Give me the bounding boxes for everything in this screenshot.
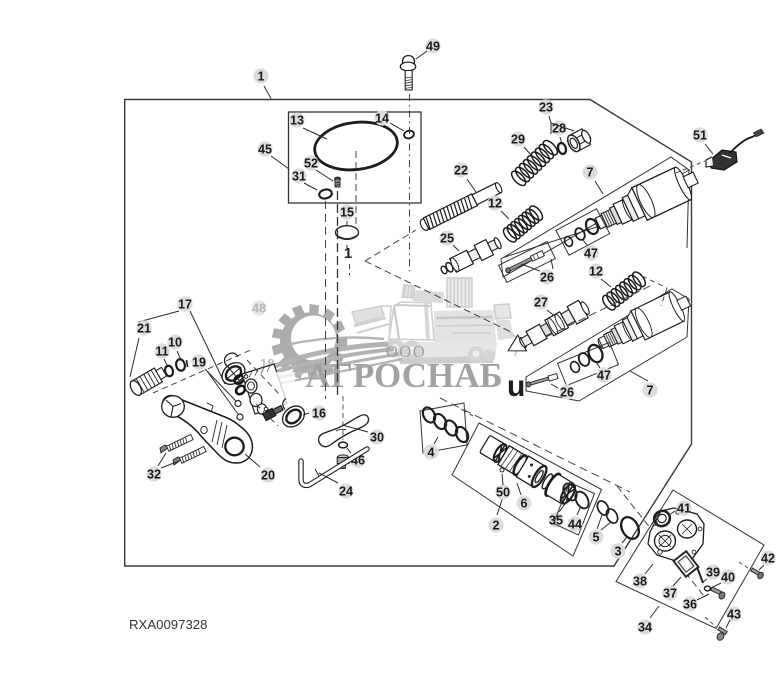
svg-text:7: 7 <box>586 166 593 180</box>
svg-text:10: 10 <box>168 336 182 350</box>
svg-text:41: 41 <box>677 502 691 516</box>
svg-text:26: 26 <box>540 271 554 285</box>
svg-text:32: 32 <box>147 468 161 482</box>
svg-text:52: 52 <box>304 157 318 171</box>
svg-text:42: 42 <box>761 552 775 566</box>
svg-text:4: 4 <box>427 446 434 460</box>
svg-text:7: 7 <box>646 384 653 398</box>
svg-text:31: 31 <box>292 170 306 184</box>
svg-text:5: 5 <box>592 531 599 545</box>
svg-text:38: 38 <box>633 575 647 589</box>
svg-text:44: 44 <box>568 518 582 532</box>
svg-text:47: 47 <box>597 369 611 383</box>
svg-text:16: 16 <box>312 407 326 421</box>
svg-text:35: 35 <box>549 514 563 528</box>
svg-text:49: 49 <box>426 40 440 54</box>
svg-text:1: 1 <box>344 245 352 262</box>
svg-text:АГРОСНАБ: АГРОСНАБ <box>305 356 502 395</box>
svg-text:22: 22 <box>454 164 468 178</box>
svg-text:51: 51 <box>693 129 707 143</box>
svg-text:12: 12 <box>589 265 603 279</box>
svg-text:13: 13 <box>290 114 304 128</box>
svg-text:43: 43 <box>727 608 741 622</box>
svg-text:21: 21 <box>137 322 151 336</box>
svg-text:12: 12 <box>488 197 502 211</box>
svg-text:11: 11 <box>155 345 168 359</box>
svg-text:u: u <box>507 370 525 403</box>
svg-text:37: 37 <box>663 587 677 601</box>
svg-text:30: 30 <box>370 431 384 445</box>
svg-text:2: 2 <box>492 519 499 533</box>
svg-text:17: 17 <box>178 298 192 312</box>
svg-text:20: 20 <box>261 469 275 483</box>
svg-text:23: 23 <box>539 101 553 115</box>
svg-text:50: 50 <box>496 486 510 500</box>
svg-text:25: 25 <box>440 232 454 246</box>
svg-text:1: 1 <box>257 70 264 84</box>
svg-text:RXA0097328: RXA0097328 <box>129 617 207 632</box>
svg-text:3: 3 <box>614 545 621 559</box>
svg-text:36: 36 <box>683 598 697 612</box>
svg-text:24: 24 <box>339 485 353 499</box>
svg-text:48: 48 <box>252 302 266 316</box>
svg-text:29: 29 <box>511 133 525 147</box>
svg-text:34: 34 <box>638 621 652 635</box>
svg-text:47: 47 <box>584 247 598 261</box>
svg-text:19: 19 <box>192 356 206 370</box>
svg-text:45: 45 <box>258 143 272 157</box>
svg-text:39: 39 <box>706 566 720 580</box>
svg-text:14: 14 <box>375 112 389 126</box>
svg-text:26: 26 <box>560 386 574 400</box>
svg-text:6: 6 <box>520 497 527 511</box>
svg-text:27: 27 <box>534 296 548 310</box>
svg-text:15: 15 <box>340 206 354 220</box>
svg-text:40: 40 <box>721 571 735 585</box>
